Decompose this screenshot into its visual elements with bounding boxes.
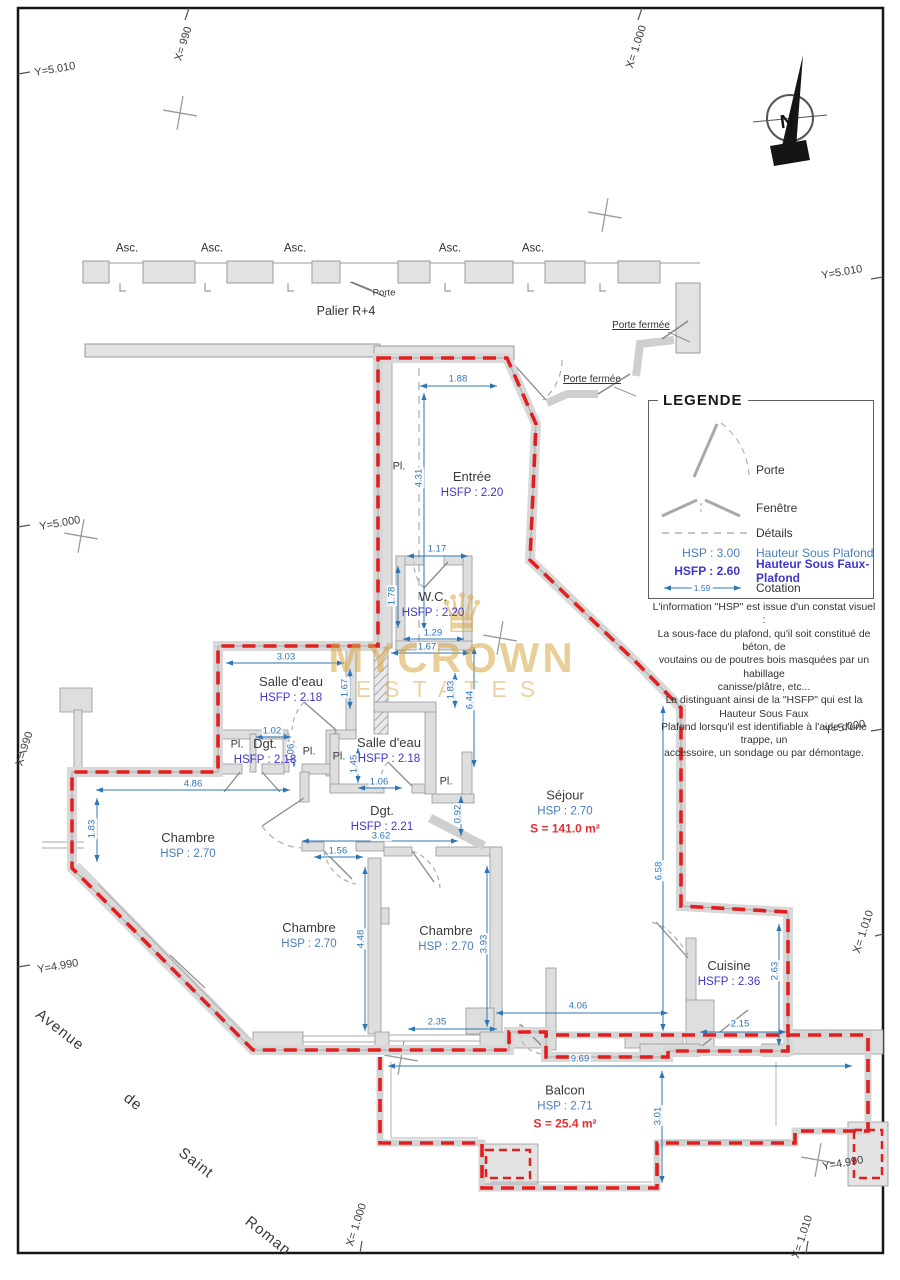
closet-label: Pl. xyxy=(303,747,316,758)
dimension-label: 3.03 xyxy=(276,652,297,662)
legend-hsfp-key: HSFP : 2.60 xyxy=(640,564,740,578)
dimension-label: 6.58 xyxy=(654,861,664,882)
dimension-label: 4.06 xyxy=(568,1001,589,1011)
room-label-balcon: BalconHSP : 2.71S = 25.4 m² xyxy=(533,1082,596,1131)
room-label-w-c-: W.C.HSFP : 2.20 xyxy=(402,589,464,621)
dimension-label: 1.56 xyxy=(328,846,349,856)
elevator-label: Asc. xyxy=(116,243,138,255)
legend-details-label: Détails xyxy=(756,526,793,540)
elevator-label: Asc. xyxy=(439,243,461,255)
dimension-label: 1.67 xyxy=(417,642,438,652)
closet-label: Pl. xyxy=(393,462,406,473)
dimension-label: 1.88 xyxy=(448,374,469,384)
room-label-chambre: ChambreHSP : 2.70 xyxy=(160,830,215,862)
elevator-label: Asc. xyxy=(522,243,544,255)
dimension-label: 3.93 xyxy=(479,934,489,955)
legend-title: LEGENDE xyxy=(658,392,748,409)
legend-note: L'information "HSP" est issue d'un const… xyxy=(650,601,878,761)
dimension-label: 4.86 xyxy=(183,779,204,789)
dimension-label: 4.48 xyxy=(356,929,366,950)
room-label-dgt-: Dgt.HSFP : 2.21 xyxy=(351,803,413,835)
dimension-label: 0.92 xyxy=(453,804,463,825)
dimension-label: 1.17 xyxy=(427,544,448,554)
room-label-salle-d-eau: Salle d'eauHSFP : 2.18 xyxy=(357,735,421,767)
dimension-label: 1.83 xyxy=(87,819,97,840)
closet-label: Pl. xyxy=(333,752,346,763)
dimension-label: 2.15 xyxy=(730,1019,751,1029)
room-label-salle-d-eau: Salle d'eauHSFP : 2.18 xyxy=(259,674,323,706)
legend-porte-label: Porte xyxy=(756,463,785,477)
porte-fermee-label-top: Porte fermée xyxy=(612,321,670,331)
closet-label: Pl. xyxy=(440,777,453,788)
floor-plan-page: ♛ MYCROWN ESTATES Y=5.010X= 990X= 1.000Y… xyxy=(0,0,900,1280)
dimension-label: 1.29 xyxy=(423,628,444,638)
legend-cotation-value: 1.59 xyxy=(692,583,713,593)
dimension-label: 6.44 xyxy=(465,690,475,711)
porte-fermee-label-bottom: Porte fermée xyxy=(563,375,621,385)
room-label-chambre: ChambreHSP : 2.70 xyxy=(418,923,473,955)
dimension-label: 1.06 xyxy=(369,777,390,787)
dimension-label: 9.69 xyxy=(570,1054,591,1064)
room-label-entr-e: EntréeHSFP : 2.20 xyxy=(441,469,503,501)
dimension-label: 1.02 xyxy=(262,726,283,736)
dimension-label: 4.31 xyxy=(414,468,424,489)
elevator-label: Asc. xyxy=(284,243,306,255)
closet-label: Pl. xyxy=(231,740,244,751)
north-letter: N xyxy=(779,112,795,133)
corridor-porte-label: Porte xyxy=(373,288,396,298)
legend-cotation-label: Cotation xyxy=(756,581,801,595)
legend-fenetre-label: Fenêtre xyxy=(756,501,797,515)
dimension-label: 2.63 xyxy=(770,961,780,982)
room-label-cuisine: CuisineHSFP : 2.36 xyxy=(698,958,760,990)
dimension-label: 3.01 xyxy=(653,1106,663,1127)
room-label-s-jour: SéjourHSP : 2.70S = 141.0 m² xyxy=(530,787,600,836)
dimension-label: 2.35 xyxy=(427,1017,448,1027)
dimension-label: 1.67 xyxy=(340,678,350,699)
dimension-label: 1.78 xyxy=(387,586,397,607)
room-label-chambre: ChambreHSP : 2.70 xyxy=(281,920,336,952)
elevator-label: Asc. xyxy=(201,243,223,255)
dimension-label: 1.83 xyxy=(446,680,456,701)
palier-label: Palier R+4 xyxy=(317,305,376,318)
watermark-line1: MYCROWN xyxy=(328,634,575,682)
legend-hsp-key: HSP : 3.00 xyxy=(640,546,740,560)
